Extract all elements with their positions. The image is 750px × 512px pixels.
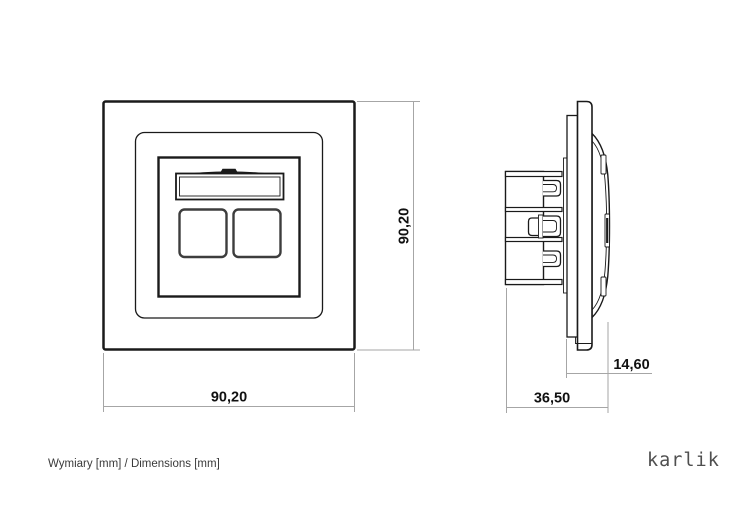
wall-plate-profile bbox=[578, 102, 593, 351]
dimension-caption: Wymiary [mm] / Dimensions [mm] bbox=[48, 458, 220, 470]
mounting-box-top-lip bbox=[506, 172, 563, 177]
mounting-claw-bottom bbox=[543, 251, 561, 267]
module-front-tab bbox=[601, 277, 606, 296]
rj45-port-left bbox=[180, 210, 227, 258]
mounting-claw-top bbox=[543, 181, 561, 197]
depth-dimension-label: 36,50 bbox=[534, 391, 570, 407]
back-frame-profile bbox=[567, 116, 578, 338]
brand-logo: karlik bbox=[647, 450, 720, 471]
dimension-drawing-page: 90,20 90,20 bbox=[0, 0, 750, 512]
fixing-screw bbox=[529, 218, 539, 236]
height-dimension: 90,20 bbox=[357, 102, 420, 351]
rj45-port-right bbox=[234, 210, 281, 258]
width-dimension: 90,20 bbox=[104, 353, 355, 412]
width-dimension-label: 90,20 bbox=[211, 390, 247, 406]
mounting-box-rail bbox=[506, 208, 563, 212]
front-view bbox=[104, 102, 355, 350]
module-front-tab bbox=[601, 155, 606, 174]
mounting-box-rail bbox=[506, 238, 563, 242]
technical-drawing: 90,20 90,20 bbox=[0, 0, 750, 512]
side-view bbox=[506, 102, 610, 351]
mounting-claw-middle bbox=[529, 215, 561, 238]
height-dimension-label: 90,20 bbox=[397, 208, 413, 244]
front-depth-dimension-label: 14,60 bbox=[613, 357, 649, 373]
mounting-box-bottom-lip bbox=[506, 280, 563, 285]
